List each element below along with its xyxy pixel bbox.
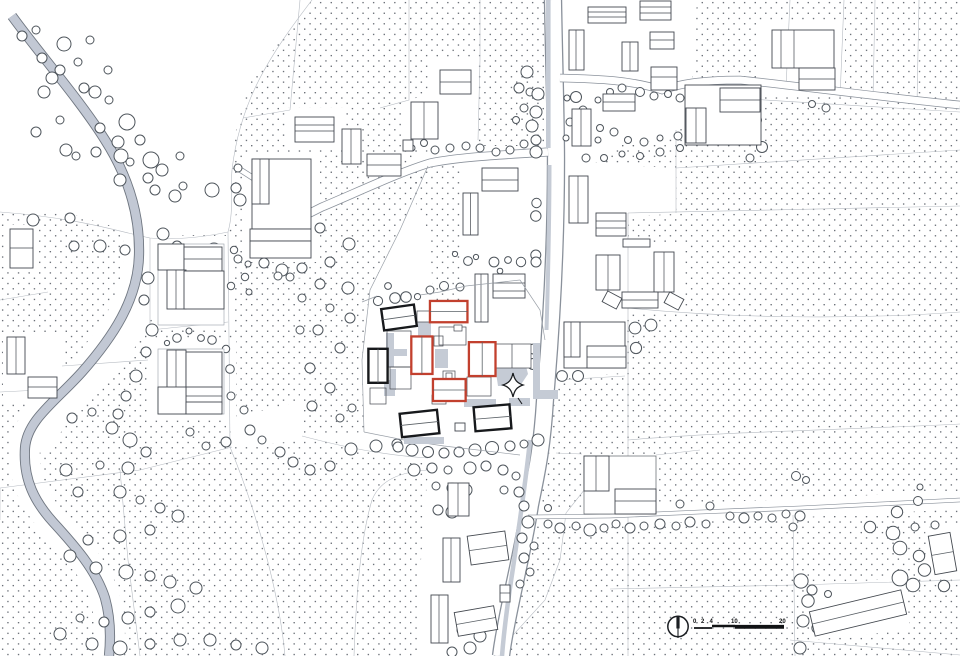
svg-text:10: 10 bbox=[731, 619, 738, 625]
svg-text:20: 20 bbox=[779, 619, 786, 625]
